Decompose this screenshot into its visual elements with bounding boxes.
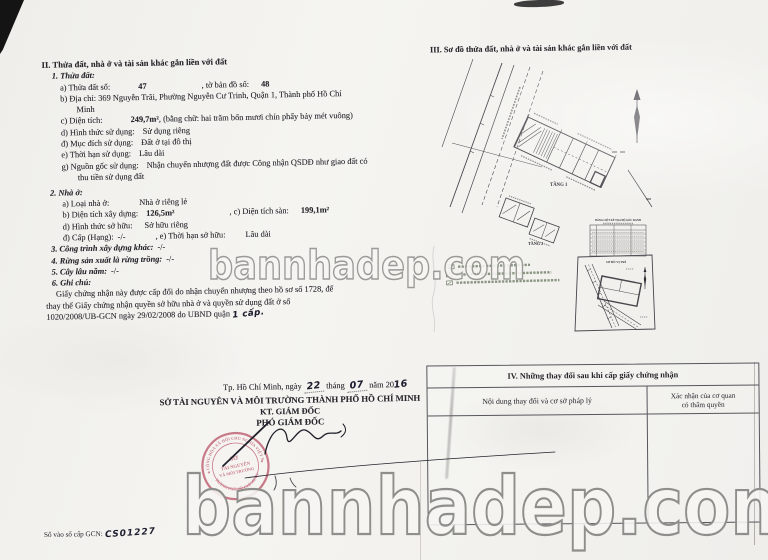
map-legend <box>446 262 559 285</box>
label: d) Hình thức sử dụng: <box>61 127 135 137</box>
label: 5. Cây lâu năm: <box>51 266 107 276</box>
label: đ) Mục đích sử dụng: <box>61 138 133 148</box>
month-label: tháng <box>326 381 345 390</box>
coordinate-table-title: BẢNG LIỆT KÊ TỌA ĐỘ GÓC RANH <box>595 219 642 222</box>
handwritten-district: 1 cấp. <box>232 307 265 322</box>
value: Sử dụng riêng <box>143 126 191 136</box>
label-own-term: , e) Thời hạn sở hữu: <box>155 230 225 240</box>
stair-hatch <box>516 120 558 159</box>
value: -/- <box>166 254 174 263</box>
value: Lâu dài <box>139 149 165 158</box>
label: e) Thời hạn sử dụng: <box>61 150 131 160</box>
section-2-land-and-house: II. Thửa đất, nhà ở và tài sản khác gắn … <box>41 52 446 324</box>
area-value: 249,7m² <box>130 115 159 125</box>
floor-area-value: 199,1m² <box>301 206 330 216</box>
scanned-land-certificate: II. Thửa đất, nhà ở và tài sản khác gắn … <box>0 0 768 560</box>
label-map-sheet: , tờ bản đồ số: <box>202 79 250 89</box>
register-number-label: Số vào sổ cấp GCN: <box>44 530 103 539</box>
location-north-arrow <box>644 267 647 289</box>
col-authority-confirm: Xác nhận của cơ quan có thẩm quyền <box>648 386 759 414</box>
own-term-value: Lâu dài <box>245 229 271 238</box>
date-prefix: Tp. Hồ Chí Minh, ngày <box>223 382 302 392</box>
label: a) Thửa đất số: <box>60 82 110 92</box>
value: Nhà ở riêng lẻ <box>139 197 187 207</box>
cadastral-map: TẦNG 1 TẦNG 2 BẢNG LIỆT KÊ TỌA ĐỘ GÓC RA… <box>440 55 760 367</box>
label: d) Hình thức sở hữu: <box>63 221 133 231</box>
built-area-value: 126,5m² <box>146 209 175 219</box>
floor2-label: TẦNG 2 <box>528 241 543 246</box>
floor1-plan <box>512 112 618 192</box>
coordinate-table: BẢNG LIỆT KÊ TỌA ĐỘ GÓC RANH <box>590 219 646 256</box>
signature-ink <box>215 406 565 501</box>
value: -/- <box>118 232 126 241</box>
stamp-star-left: ★ <box>207 469 212 475</box>
parcel-number-value: 47 <box>138 81 147 90</box>
label: g) Nguồn gốc sử dụng: <box>61 161 138 171</box>
value: Đất ở tại đô thị <box>141 137 192 147</box>
location-parcel <box>598 276 642 306</box>
street-lines <box>442 59 543 213</box>
map-legend-line <box>446 278 559 285</box>
year-label: năm 20 <box>369 380 394 389</box>
scan-smudge <box>514 0 564 8</box>
map-legend-line <box>446 270 551 277</box>
handwritten-day: 22 <box>303 380 324 394</box>
location-diagram-title: SƠ ĐỒ VỊ TRÍ <box>606 259 627 264</box>
boundary-tail <box>628 170 652 207</box>
label: b) Diện tích xây dựng: <box>62 209 138 219</box>
map-legend-line <box>448 263 530 269</box>
north-arrow <box>634 89 641 143</box>
register-number-line: Số vào sổ cấp GCN: CS01227 <box>44 528 156 540</box>
value: Sở hữu riêng <box>144 220 188 230</box>
value: -/- <box>157 243 165 252</box>
col-authority-line1: Xác nhận của cơ quan <box>671 390 736 400</box>
label: a) Loại nhà ở: <box>62 199 109 209</box>
register-number-value: CS01227 <box>104 527 156 541</box>
note-text: 1020/2008/UB-GCN ngày 29/02/2008 do UBND… <box>46 309 230 322</box>
label: đ) Cấp (Hạng): <box>63 232 114 242</box>
floor1-label: TẦNG 1 <box>550 182 568 188</box>
map-sheet-value: 48 <box>261 79 270 88</box>
location-diagram: SƠ ĐỒ VỊ TRÍ <box>575 255 655 331</box>
area-words: , (bằng chữ: hai trăm bốn mươi chín phẩy… <box>159 111 353 124</box>
label-floor-area: , c) Diện tích sàn: <box>229 207 288 217</box>
handwritten-year: 16 <box>394 378 409 390</box>
scan-corner-artifact <box>0 0 24 54</box>
value: -/- <box>111 266 119 275</box>
label: 3. Công trình xây dựng khác: <box>51 243 153 254</box>
handwritten-month: 07 <box>346 379 367 393</box>
section-3-title: III. Sơ đồ thửa đất, nhà ở và tài sản kh… <box>430 43 632 55</box>
label: c) Diện tích: <box>61 116 103 126</box>
label: 4. Rừng sản xuất là rừng trồng: <box>51 254 162 265</box>
floor2-plan <box>496 195 564 247</box>
col-authority-line2: có thẩm quyền <box>682 399 725 408</box>
